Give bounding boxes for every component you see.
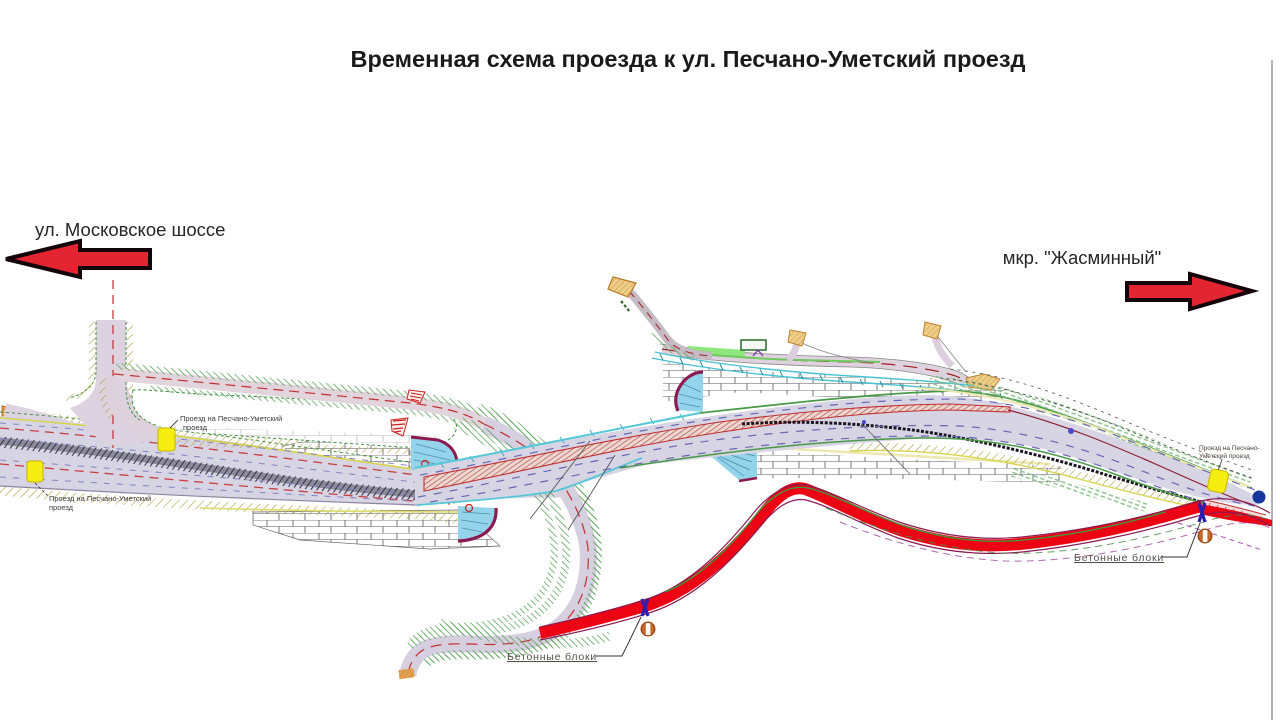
svg-text:проезд: проезд (183, 423, 208, 432)
svg-text:Бетонные блоки: Бетонные блоки (507, 651, 597, 663)
svg-text:Временная схема проезда к ул.: Временная схема проезда к ул. Песчано-Ум… (351, 46, 1026, 72)
svg-text:Проезд на Песчано-Уметский: Проезд на Песчано-Уметский (49, 494, 151, 503)
svg-text:Уметский проезд: Уметский проезд (1199, 452, 1250, 460)
svg-text:Проезд на Песчано-Уметский: Проезд на Песчано-Уметский (180, 414, 282, 423)
svg-text:Бетонные блоки: Бетонные блоки (1074, 552, 1164, 564)
svg-text:ул. Московское шоссе: ул. Московское шоссе (35, 219, 225, 240)
svg-text:мкр. "Жасминный": мкр. "Жасминный" (1003, 247, 1161, 268)
svg-text:проезд: проезд (49, 503, 74, 512)
svg-text:Проезд на Песчано-: Проезд на Песчано- (1199, 445, 1260, 452)
